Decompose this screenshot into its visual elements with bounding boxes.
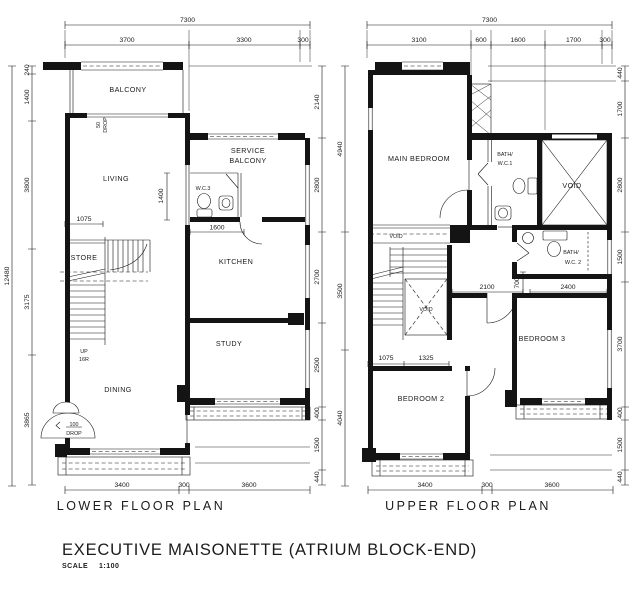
annotation-100-drop-a: 100 bbox=[70, 422, 79, 428]
dim-lower-right-440: 440 bbox=[314, 471, 321, 483]
scale-value: 1:100 bbox=[99, 563, 119, 570]
lower-fixtures bbox=[190, 173, 241, 217]
dim-lower-right-2500: 2500 bbox=[314, 357, 321, 372]
dim-upper-top-1700: 1700 bbox=[566, 37, 581, 44]
annotation-50-drop-b: DROP bbox=[103, 117, 109, 133]
dim-lower-bottom-3600: 3600 bbox=[241, 482, 256, 489]
dim-upper-1325: 1325 bbox=[418, 355, 433, 362]
dim-upper-700: 700 bbox=[514, 277, 521, 289]
room-label-bedroom2: BEDROOM 2 bbox=[398, 394, 445, 403]
dim-upper-left-3500: 3500 bbox=[337, 283, 344, 298]
lower-floor-plan: BALCONY LIVING STORE DINING SERVICE BALC… bbox=[4, 17, 326, 513]
annotation-up: UP bbox=[80, 349, 88, 355]
dim-upper-right-3700: 3700 bbox=[617, 336, 624, 351]
dim-lower-top-3700: 3700 bbox=[119, 37, 134, 44]
dim-upper-right-400: 400 bbox=[617, 407, 624, 419]
room-label-living: LIVING bbox=[103, 174, 129, 183]
room-label-bath-wc1-b: W.C.1 bbox=[498, 161, 513, 167]
dim-upper-2400: 2400 bbox=[560, 284, 575, 291]
dim-upper-right-440b: 440 bbox=[617, 471, 624, 483]
dim-upper-bottom-300: 300 bbox=[481, 482, 493, 489]
dim-upper-right-1700: 1700 bbox=[617, 101, 624, 116]
dim-lower-left-3865: 3865 bbox=[24, 412, 31, 427]
dim-lower-top-total: 7300 bbox=[180, 17, 195, 24]
dim-lower-right-2140: 2140 bbox=[314, 94, 321, 109]
dim-lower-bottom-3400: 3400 bbox=[114, 482, 129, 489]
room-label-void-strip: VOID bbox=[389, 234, 402, 240]
dim-upper-bottom-3600: 3600 bbox=[544, 482, 559, 489]
dim-upper-right-2800: 2800 bbox=[617, 177, 624, 192]
dim-lower-top-3300: 3300 bbox=[236, 37, 251, 44]
annotation-100-drop-b: DROP bbox=[66, 431, 82, 437]
dim-lower-1075: 1075 bbox=[76, 216, 91, 223]
dim-upper-left-4040: 4040 bbox=[337, 410, 344, 425]
dim-lower-top-300: 300 bbox=[297, 37, 309, 44]
room-label-wc3: W.C.3 bbox=[196, 186, 211, 192]
room-label-main-bedroom: MAIN BEDROOM bbox=[388, 154, 450, 163]
room-label-bath-wc1-a: BATH/ bbox=[497, 152, 513, 158]
upper-stairs bbox=[371, 247, 447, 340]
dim-upper-left-4940: 4940 bbox=[337, 141, 344, 156]
lower-walls bbox=[41, 62, 312, 475]
dim-upper-top-total: 7300 bbox=[482, 17, 497, 24]
dim-upper-top-600: 600 bbox=[475, 37, 487, 44]
upper-plan-caption: UPPER FLOOR PLAN bbox=[385, 499, 551, 513]
upper-fixtures bbox=[495, 178, 567, 257]
scale-label: SCALE bbox=[62, 563, 88, 570]
dim-upper-2100: 2100 bbox=[479, 284, 494, 291]
room-label-kitchen: KITCHEN bbox=[219, 257, 253, 266]
dim-upper-top-1600: 1600 bbox=[510, 37, 525, 44]
dim-lower-bottom-300: 300 bbox=[178, 482, 190, 489]
annotation-50-drop-a: 50 bbox=[96, 122, 102, 128]
dim-upper-right-1500b: 1500 bbox=[617, 437, 624, 452]
title-block: EXECUTIVE MAISONETTE (ATRIUM BLOCK-END) … bbox=[62, 541, 477, 570]
dim-lower-1400: 1400 bbox=[158, 188, 165, 203]
room-label-bath-wc2-b: W.C. 2 bbox=[565, 260, 581, 266]
room-label-dining: DINING bbox=[104, 385, 132, 394]
dim-lower-right-1500: 1500 bbox=[314, 437, 321, 452]
room-label-bedroom3: BEDROOM 3 bbox=[519, 334, 566, 343]
room-label-service-balcony-2: BALCONY bbox=[229, 156, 266, 165]
upper-dimensions: 7300 3100 600 1600 1700 300 4940 3500 40… bbox=[337, 17, 629, 494]
dim-lower-right-2800: 2800 bbox=[314, 177, 321, 192]
dim-upper-right-1500a: 1500 bbox=[617, 249, 624, 264]
room-label-void-big: VOID bbox=[562, 181, 581, 190]
room-label-store: STORE bbox=[71, 253, 98, 262]
dim-lower-right-2700: 2700 bbox=[314, 269, 321, 284]
dim-lower-1600: 1600 bbox=[209, 225, 224, 232]
lower-room-labels: BALCONY LIVING STORE DINING SERVICE BALC… bbox=[66, 85, 266, 437]
drawing-title: EXECUTIVE MAISONETTE (ATRIUM BLOCK-END) bbox=[62, 541, 477, 559]
dim-upper-top-300: 300 bbox=[599, 37, 611, 44]
room-label-void-mid: VOID bbox=[419, 307, 432, 313]
floorplan-drawing: BALCONY LIVING STORE DINING SERVICE BALC… bbox=[0, 0, 642, 600]
dim-upper-1075: 1075 bbox=[378, 355, 393, 362]
dim-lower-left-total: 12480 bbox=[4, 266, 11, 285]
dim-upper-right-440a: 440 bbox=[617, 67, 624, 79]
room-label-service-balcony-1: SERVICE bbox=[231, 146, 265, 155]
dim-lower-left-3800: 3800 bbox=[24, 177, 31, 192]
dim-lower-left-240: 240 bbox=[24, 64, 31, 76]
annotation-16r: 16R bbox=[79, 357, 89, 363]
room-label-study: STUDY bbox=[216, 339, 242, 348]
lower-plan-caption: LOWER FLOOR PLAN bbox=[57, 499, 226, 513]
dim-lower-right-400: 400 bbox=[314, 407, 321, 419]
upper-walls bbox=[362, 62, 616, 476]
upper-floor-plan: MAIN BEDROOM BATH/ W.C.1 VOID VOID VOID … bbox=[337, 17, 629, 513]
dim-upper-top-3100: 3100 bbox=[411, 37, 426, 44]
dim-upper-bottom-3400: 3400 bbox=[417, 482, 432, 489]
dim-lower-left-1400: 1400 bbox=[24, 89, 31, 104]
dim-lower-left-3175: 3175 bbox=[24, 294, 31, 309]
room-label-balcony: BALCONY bbox=[109, 85, 146, 94]
room-label-bath-wc2-a: BATH/ bbox=[563, 250, 579, 256]
